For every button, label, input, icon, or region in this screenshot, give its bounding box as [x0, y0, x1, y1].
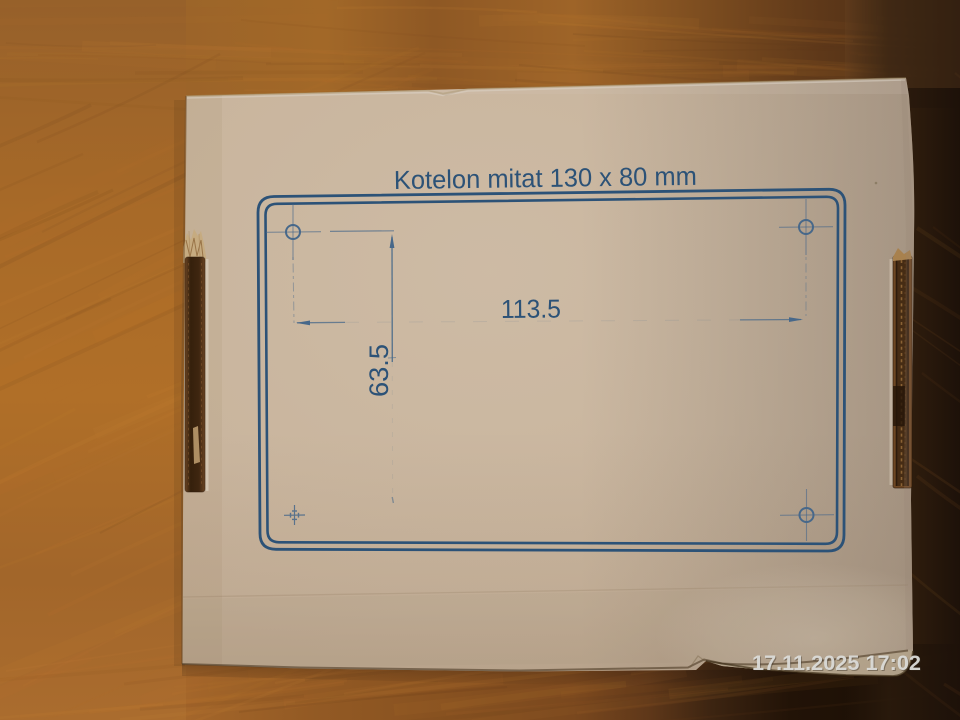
svg-text:17.11.2025 17:02: 17.11.2025 17:02 [752, 651, 921, 675]
svg-text:63.5: 63.5 [364, 344, 394, 397]
svg-text:113.5: 113.5 [501, 293, 561, 324]
svg-text:Kotelon mitat 130 x 80 mm: Kotelon mitat 130 x 80 mm [394, 161, 697, 195]
